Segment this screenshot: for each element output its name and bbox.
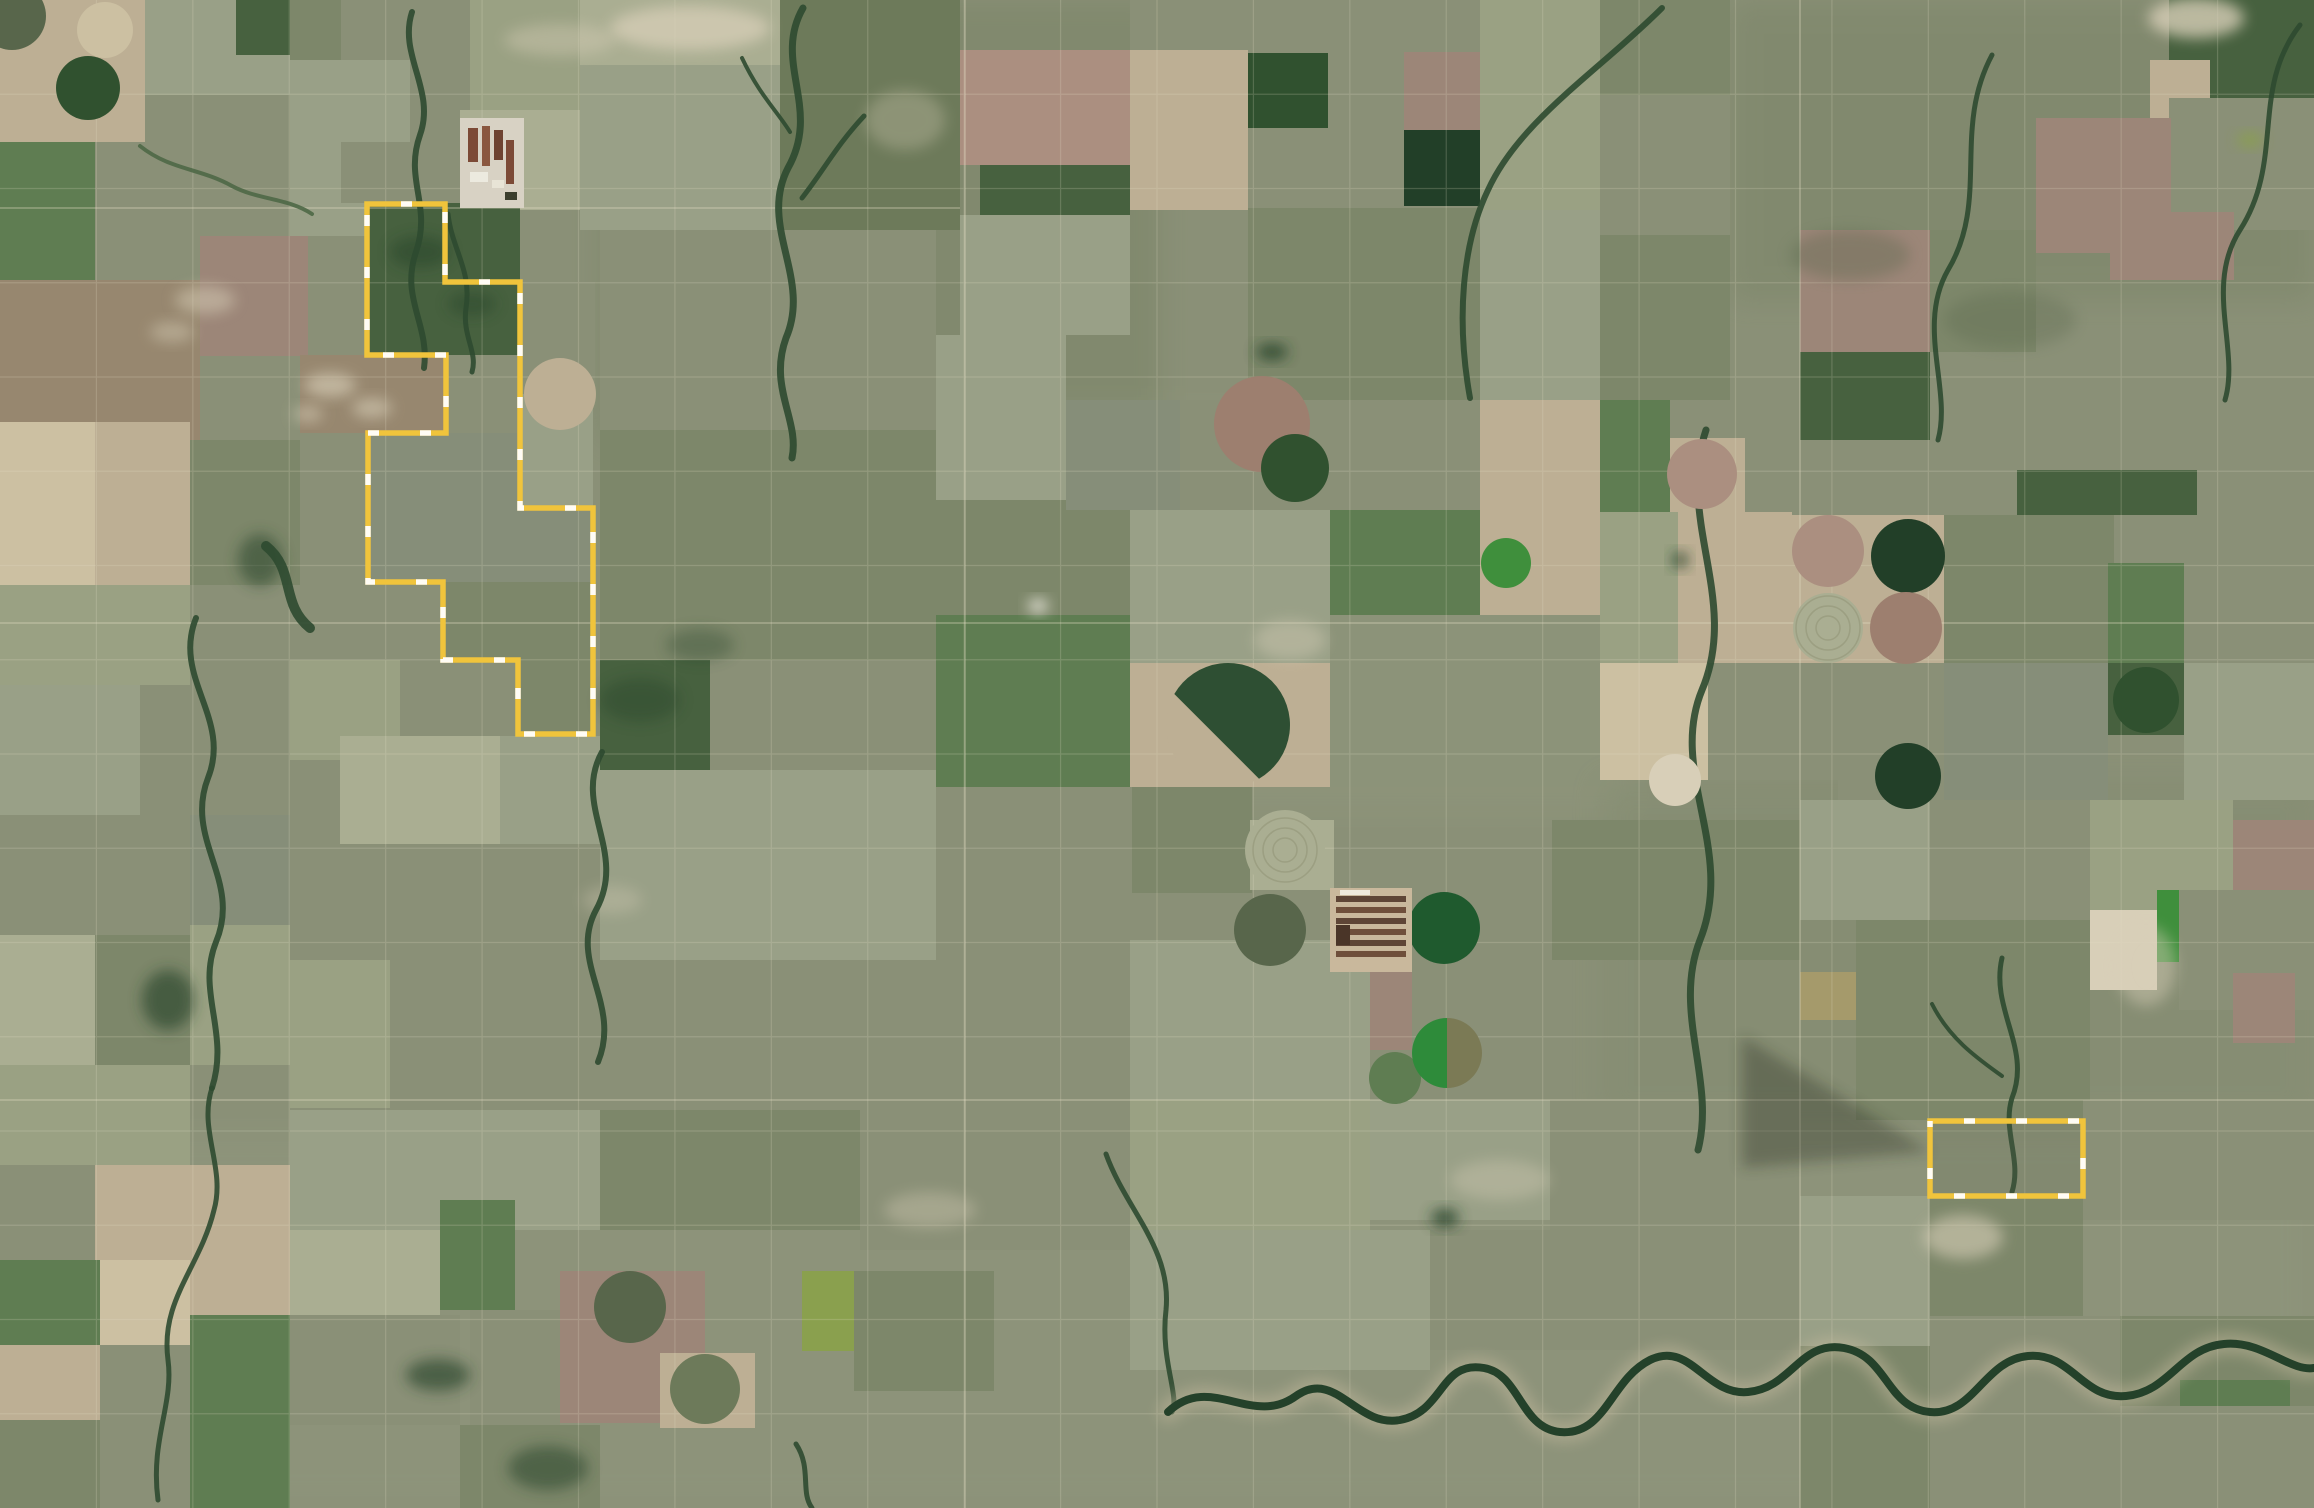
terrain-mottle [1431, 1209, 1459, 1227]
terrain-mottle [175, 286, 235, 314]
field-patch [936, 335, 1066, 500]
farm-building [470, 172, 488, 182]
terrain-mottle [1923, 1215, 2003, 1259]
field-patch [1132, 787, 1252, 893]
farmstead [460, 118, 524, 208]
pivot-circle [1261, 434, 1329, 502]
pivot-circle [1667, 439, 1737, 509]
field-patch [0, 1345, 100, 1420]
terrain-mottle [1028, 599, 1048, 613]
field-patch [600, 230, 936, 430]
field-patch [290, 960, 390, 1108]
satellite-map[interactable] [0, 0, 2314, 1508]
field-patch [518, 660, 593, 734]
field-patch [600, 770, 936, 960]
field-patch [1930, 800, 2090, 920]
field-patch [0, 1165, 95, 1260]
field-patch [1800, 1196, 1930, 1346]
terrain-mottle [1256, 344, 1288, 360]
pivot-circle [1649, 754, 1701, 806]
field-patch [0, 1260, 100, 1345]
field-patch [580, 65, 780, 230]
terrain-mottle [1944, 292, 2076, 348]
terrain-mottle [406, 1359, 470, 1391]
terrain-mottle [600, 678, 680, 722]
field-patch [1480, 0, 1600, 210]
field-patch [2169, 98, 2314, 230]
farm-building [492, 180, 504, 188]
field-patch [1930, 352, 2036, 470]
field-patch [1930, 1406, 2314, 1508]
map-viewport[interactable] [0, 0, 2314, 1508]
field-patch [100, 1345, 190, 1508]
field-patch [1328, 0, 1480, 52]
terrain-mottle [293, 406, 323, 422]
terrain-mottle [448, 292, 496, 316]
field-patch [600, 960, 1130, 1110]
terrain-mottle [150, 322, 194, 342]
pivot-circle [1875, 743, 1941, 809]
field-patch [0, 585, 190, 685]
pivot-circle [1871, 519, 1945, 593]
terrain-mottle [352, 398, 392, 418]
farm-building [506, 140, 514, 184]
terrain-mottle [142, 970, 194, 1030]
field-patch [1130, 50, 1248, 210]
terrain-mottle [1254, 620, 1326, 660]
field-patch [1944, 663, 2108, 800]
field-patch [1330, 510, 1480, 615]
field-patch [95, 422, 190, 585]
farm-building [505, 192, 517, 200]
farm-building [494, 130, 503, 160]
pivot-circle [1481, 538, 1531, 588]
field-patch [0, 142, 95, 280]
field-patch [0, 1420, 100, 1508]
field-patch [470, 0, 580, 120]
field-patch [1404, 130, 1480, 206]
field-patch [0, 1065, 190, 1165]
feedlot-pen-row [1340, 890, 1370, 895]
farm-building [482, 126, 490, 166]
field-patch [960, 215, 1130, 335]
feedlot-pen-row [1336, 918, 1406, 924]
field-patch [1370, 1100, 1550, 1220]
field-patch [1130, 1230, 1430, 1370]
pivot-circle [1408, 892, 1480, 964]
field-patch [0, 935, 95, 1065]
terrain-mottle [2116, 926, 2176, 1006]
field-patch [2083, 1100, 2314, 1220]
field-patch [1944, 515, 2114, 663]
field-patch [190, 1315, 290, 1508]
pivot-circle [524, 358, 596, 430]
terrain-mottle [1450, 1160, 1550, 1200]
pivot-circle [1245, 810, 1325, 890]
pivot-circle [1870, 592, 1942, 664]
field-patch [1130, 0, 1248, 50]
pivot-circle [1793, 593, 1863, 663]
field-patch [854, 1271, 994, 1391]
pivot-circle [1234, 894, 1306, 966]
field-patch [1480, 210, 1600, 400]
field-patch [470, 1310, 560, 1425]
field-patch [340, 736, 500, 844]
terrain-mottle [865, 90, 945, 150]
field-patch [2233, 973, 2295, 1043]
field-patch [2110, 212, 2234, 280]
field-patch [1800, 800, 1930, 920]
pivot-circle [77, 2, 133, 58]
terrain-mottle [666, 629, 734, 661]
feedlot [1330, 888, 1412, 972]
terrain-mottle [1790, 230, 1910, 280]
field-patch [960, 50, 1130, 165]
field-patch [1130, 1100, 1370, 1230]
terrain-mottle [304, 373, 356, 397]
field-patch [341, 142, 467, 203]
terrain-mottle [610, 6, 770, 50]
terrain-mottle [884, 1192, 976, 1228]
terrain-mottle [1672, 552, 1688, 568]
field-patch [600, 430, 936, 660]
pivot-circle [670, 1354, 740, 1424]
field-patch [290, 1230, 440, 1315]
pivot-circle [2113, 667, 2179, 733]
field-patch [0, 280, 140, 422]
field-patch [1600, 95, 1730, 235]
field-patch [0, 685, 140, 815]
field-patch [190, 585, 290, 695]
field-patch [390, 960, 600, 1110]
terrain-mottle [582, 886, 642, 914]
field-patch [368, 433, 520, 508]
field-patch [1552, 820, 1800, 960]
field-patch [1248, 128, 1404, 208]
field-patch [1800, 352, 1932, 440]
field-patch [1600, 400, 1670, 512]
feedlot-pen-row [1336, 925, 1350, 945]
field-patch [0, 422, 95, 585]
field-patch [802, 1271, 854, 1351]
field-patch [1856, 920, 2090, 1120]
terrain-mottle [508, 1446, 588, 1490]
field-patch [500, 736, 600, 844]
field-tint [1930, 1121, 2083, 1196]
terrain-mottle [2237, 133, 2263, 147]
field-patch [2184, 663, 2314, 800]
field-patch [1600, 235, 1730, 400]
field-patch [1404, 52, 1480, 130]
field-patch [980, 165, 1130, 215]
field-patch [1248, 208, 1480, 400]
farm-building [468, 128, 478, 162]
field-patch [95, 1165, 190, 1260]
field-patch [1248, 53, 1328, 128]
terrain-mottle [504, 24, 616, 56]
field-patch [2108, 563, 2184, 663]
field-patch [1430, 1230, 1800, 1350]
field-patch [1066, 400, 1180, 510]
field-patch [2184, 563, 2314, 663]
field-patch [290, 0, 341, 60]
pivot-circle [56, 56, 120, 120]
feedlot-pen-row [1336, 896, 1406, 902]
field-patch [600, 1110, 860, 1230]
field-patch [1800, 972, 1856, 1020]
field-patch [1800, 1346, 1930, 1508]
field-patch [1708, 663, 1838, 780]
pivot-circle [1792, 515, 1864, 587]
field-patch [190, 925, 290, 1065]
field-patch [440, 1200, 515, 1310]
pivot-circle [594, 1271, 666, 1343]
feedlot-pen-row [1336, 951, 1406, 957]
field-patch [368, 508, 593, 582]
field-patch [2017, 470, 2197, 515]
field-patch [443, 582, 593, 660]
feedlot-pen-row [1336, 907, 1406, 913]
field-patch [0, 815, 190, 935]
